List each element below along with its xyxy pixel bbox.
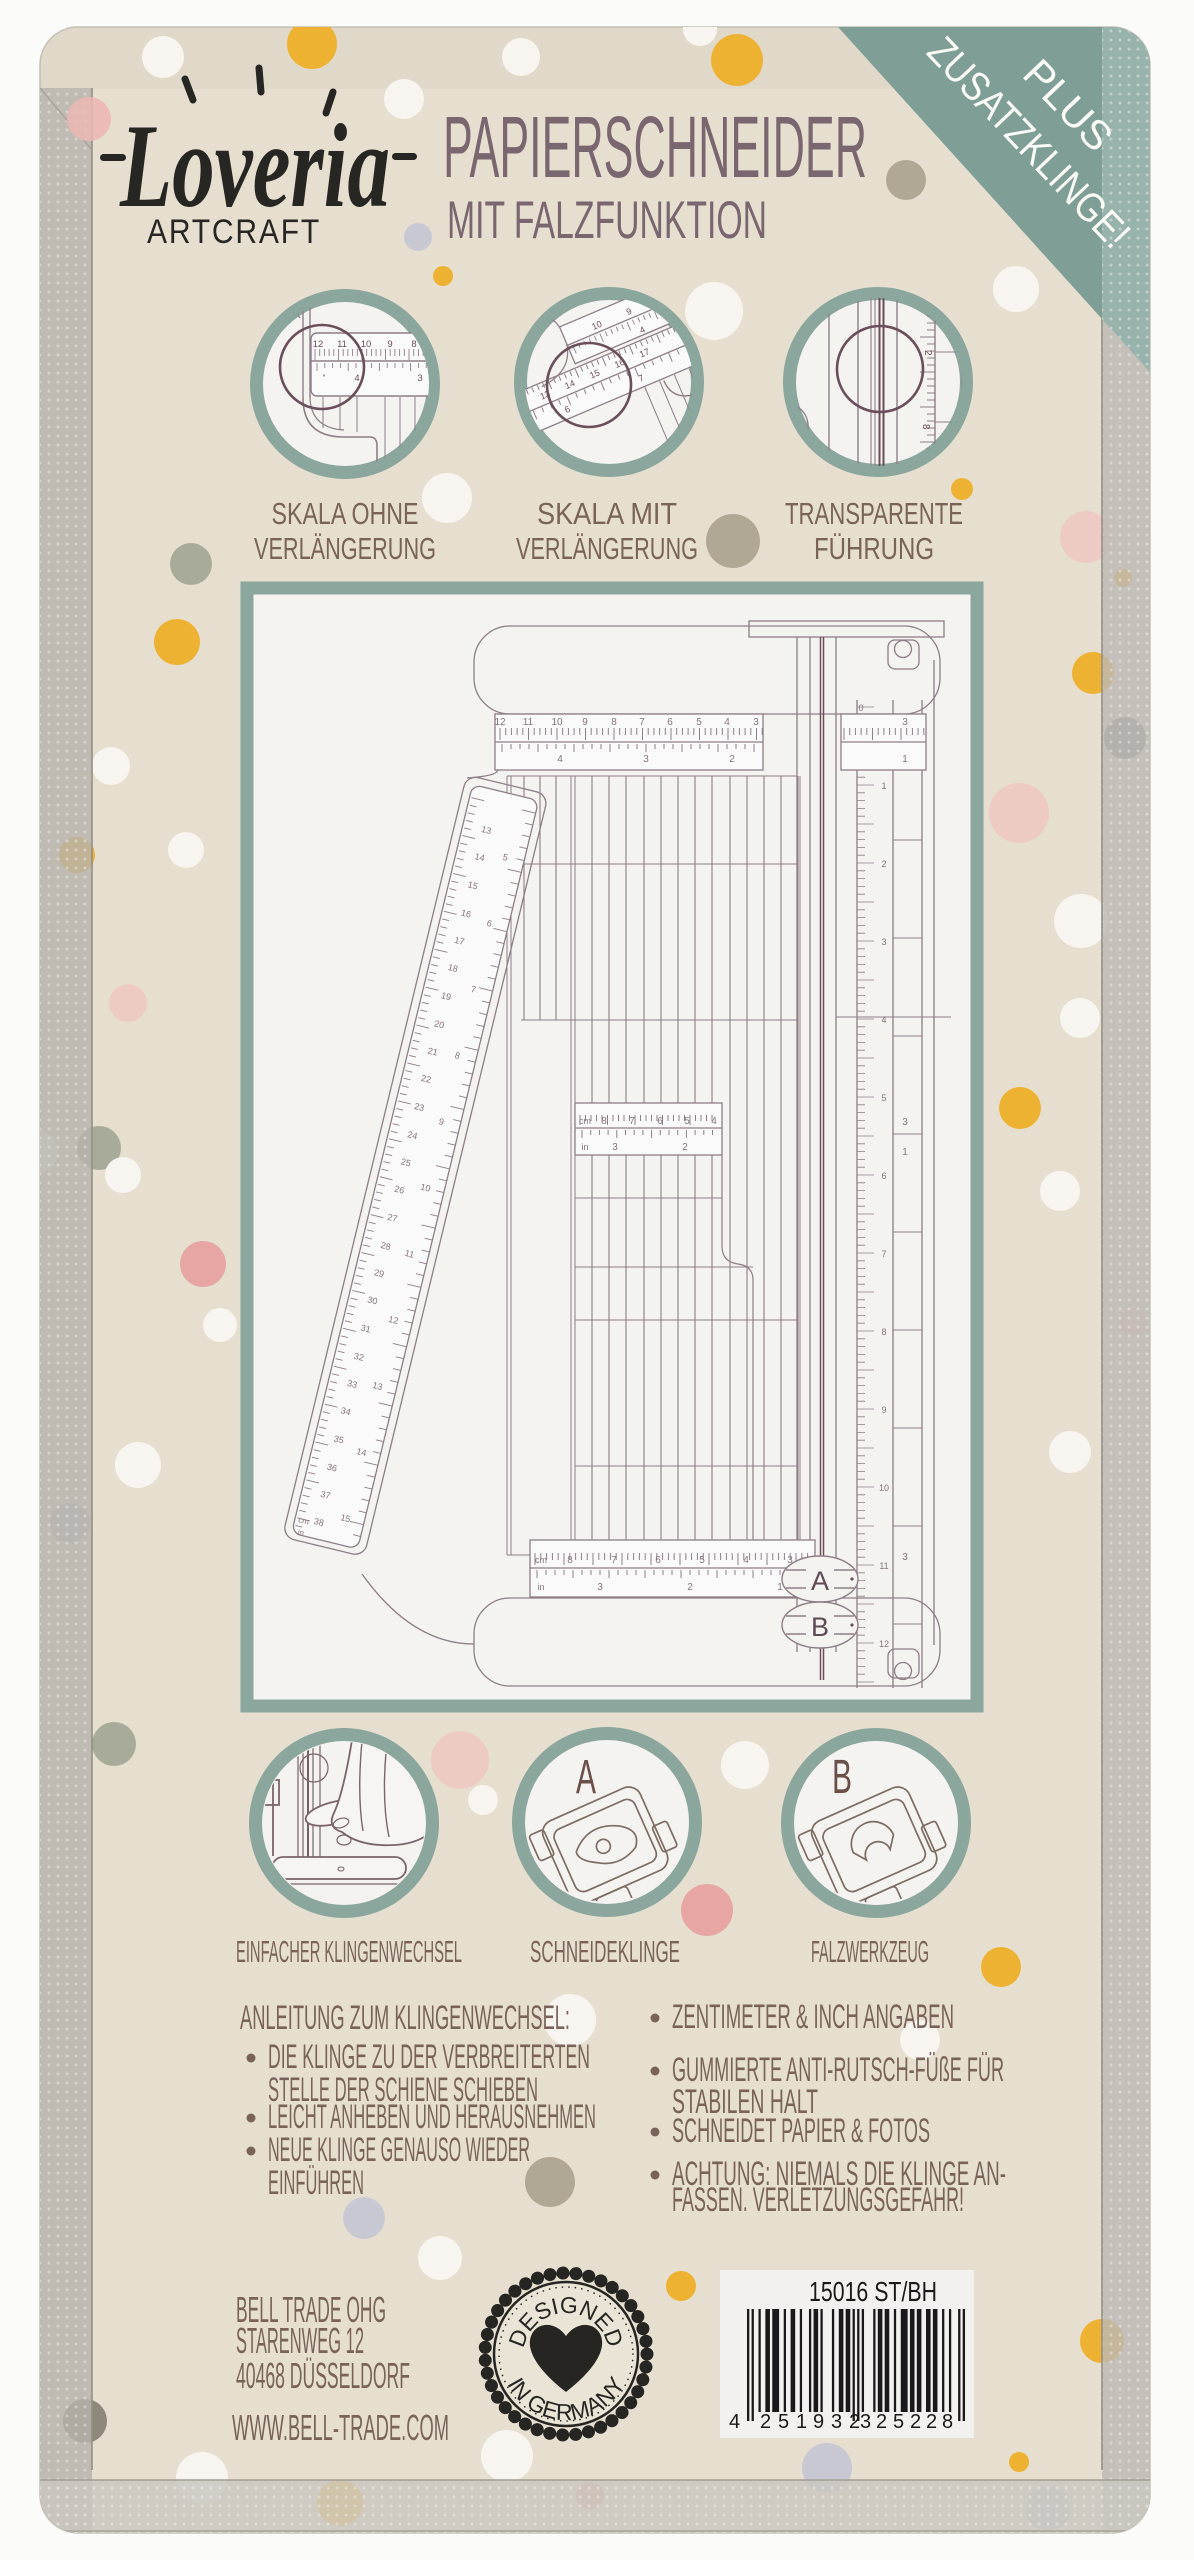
svg-text:5: 5 [684, 1116, 690, 1127]
svg-text:1: 1 [902, 1147, 908, 1158]
svg-text:A: A [811, 1566, 829, 1596]
svg-text:6: 6 [667, 717, 673, 728]
svg-text:1: 1 [796, 2411, 807, 2433]
svg-text:8: 8 [881, 1327, 886, 1337]
svg-text:5: 5 [696, 717, 702, 728]
svg-text:4: 4 [711, 1116, 717, 1127]
svg-text:2: 2 [910, 2411, 921, 2433]
svg-text:12: 12 [494, 717, 506, 728]
svg-text:11: 11 [879, 1561, 888, 1571]
svg-text:B: B [832, 1751, 852, 1804]
svg-text:ZENTIMETER & INCH ANGABEN: ZENTIMETER & INCH ANGABEN [672, 1998, 954, 2036]
svg-text:3: 3 [417, 373, 422, 384]
svg-text:0: 0 [858, 703, 863, 713]
svg-text:FASSEN. VERLETZUNGSGEFAHR!: FASSEN. VERLETZUNGSGEFAHR! [672, 2181, 964, 2219]
svg-text:10: 10 [361, 339, 372, 350]
svg-text:3: 3 [597, 1582, 603, 1593]
svg-text:2: 2 [760, 2411, 771, 2433]
svg-text:1: 1 [902, 754, 908, 765]
svg-text:4: 4 [881, 1015, 886, 1025]
svg-text:40468 DÜSSELDORF: 40468 DÜSSELDORF [236, 2355, 410, 2396]
svg-text:SCHNEIDEKLINGE: SCHNEIDEKLINGE [530, 1934, 680, 1969]
svg-text:in: in [537, 1582, 544, 1592]
svg-text:2: 2 [876, 2411, 887, 2433]
svg-text:4: 4 [729, 2411, 740, 2433]
svg-text:6: 6 [657, 1116, 663, 1127]
svg-text:FÜHRUNG: FÜHRUNG [814, 531, 934, 566]
svg-text:PAPIERSCHNEIDER: PAPIERSCHNEIDER [443, 99, 867, 196]
svg-text:cm: cm [579, 1116, 591, 1126]
svg-text:4: 4 [557, 754, 563, 765]
svg-text:SKALA MIT: SKALA MIT [537, 496, 677, 531]
svg-text:4: 4 [743, 1555, 749, 1566]
svg-text:TRANSPARENTE: TRANSPARENTE [785, 496, 963, 531]
svg-text:2: 2 [922, 350, 933, 356]
svg-text:3: 3 [753, 717, 759, 728]
svg-text:6: 6 [655, 1555, 661, 1566]
svg-text:ANLEITUNG ZUM KLINGENWECHSEL:: ANLEITUNG ZUM KLINGENWECHSEL: [240, 1999, 570, 2037]
svg-text:3: 3 [881, 937, 886, 947]
svg-text:2: 2 [729, 754, 735, 765]
svg-text:5: 5 [881, 1093, 886, 1103]
svg-text:12: 12 [313, 339, 324, 350]
svg-text:9: 9 [813, 2411, 824, 2433]
svg-text:EINFÜHREN: EINFÜHREN [268, 2164, 364, 2202]
svg-text:A: A [576, 1751, 596, 1804]
svg-text:9: 9 [582, 717, 588, 728]
svg-text:EINFACHER KLINGENWECHSEL: EINFACHER KLINGENWECHSEL [236, 1934, 462, 1969]
svg-text:3: 3 [860, 2411, 871, 2433]
svg-text:1: 1 [881, 781, 886, 791]
svg-text:cm: cm [535, 1555, 547, 1565]
svg-text:11: 11 [337, 339, 347, 350]
svg-text:SKALA OHNE: SKALA OHNE [272, 496, 419, 531]
svg-text:3: 3 [612, 1142, 618, 1153]
svg-text:3: 3 [643, 754, 649, 765]
svg-text:10: 10 [879, 1483, 889, 1493]
svg-text:8: 8 [411, 339, 416, 350]
svg-text:*: * [323, 374, 326, 381]
svg-text:5: 5 [778, 2411, 789, 2433]
svg-text:5: 5 [893, 2411, 904, 2433]
svg-text:3: 3 [902, 1117, 908, 1128]
svg-text:9: 9 [881, 1405, 886, 1415]
svg-text:MIT FALZFUNKTION: MIT FALZFUNKTION [447, 191, 767, 250]
svg-text:7: 7 [639, 717, 645, 728]
svg-text:SCHNEIDET PAPIER & FOTOS: SCHNEIDET PAPIER & FOTOS [672, 2112, 930, 2150]
svg-text:2: 2 [682, 1142, 688, 1153]
svg-text:3: 3 [902, 717, 908, 728]
svg-text:VERLÄNGERUNG: VERLÄNGERUNG [254, 531, 436, 566]
svg-text:7: 7 [881, 1249, 886, 1259]
svg-text:5: 5 [699, 1555, 705, 1566]
svg-text:2: 2 [926, 2411, 937, 2433]
svg-text:FALZWERKZEUG: FALZWERKZEUG [811, 1934, 929, 1969]
svg-text:2: 2 [687, 1582, 693, 1593]
svg-text:in: in [581, 1142, 588, 1152]
svg-text:7: 7 [629, 1116, 635, 1127]
svg-text:11: 11 [523, 717, 534, 728]
svg-text:8: 8 [942, 2411, 953, 2433]
svg-text:2: 2 [849, 2411, 860, 2433]
svg-text:3: 3 [831, 2411, 842, 2433]
svg-text:12: 12 [879, 1639, 889, 1649]
svg-text:10: 10 [551, 717, 563, 728]
svg-text:3: 3 [902, 1552, 908, 1563]
svg-text:9: 9 [387, 339, 392, 350]
svg-text:7: 7 [611, 1555, 617, 1566]
svg-text:8: 8 [920, 424, 931, 430]
svg-text:15016 ST/BH: 15016 ST/BH [809, 2276, 937, 2307]
svg-text:8: 8 [601, 1116, 607, 1127]
svg-text:B: B [811, 1612, 829, 1642]
svg-text:WWW.BELL-TRADE.COM: WWW.BELL-TRADE.COM [232, 2407, 449, 2448]
svg-text:4: 4 [354, 373, 359, 384]
svg-text:6: 6 [881, 1171, 886, 1181]
svg-text:8: 8 [567, 1555, 573, 1566]
svg-text:8: 8 [611, 717, 617, 728]
svg-text:2: 2 [881, 859, 886, 869]
svg-text:4: 4 [724, 717, 730, 728]
svg-text:ARTCRAFT: ARTCRAFT [147, 213, 321, 251]
svg-text:VERLÄNGERUNG: VERLÄNGERUNG [516, 531, 698, 566]
